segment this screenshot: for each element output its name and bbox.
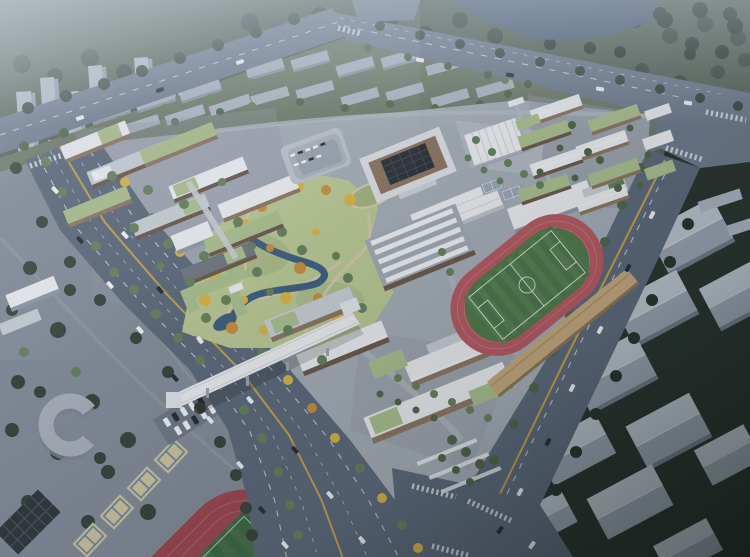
shadow-vignette [0,0,750,557]
aerial-rendering-canvas [0,0,750,557]
aerial-rendering [0,0,750,557]
